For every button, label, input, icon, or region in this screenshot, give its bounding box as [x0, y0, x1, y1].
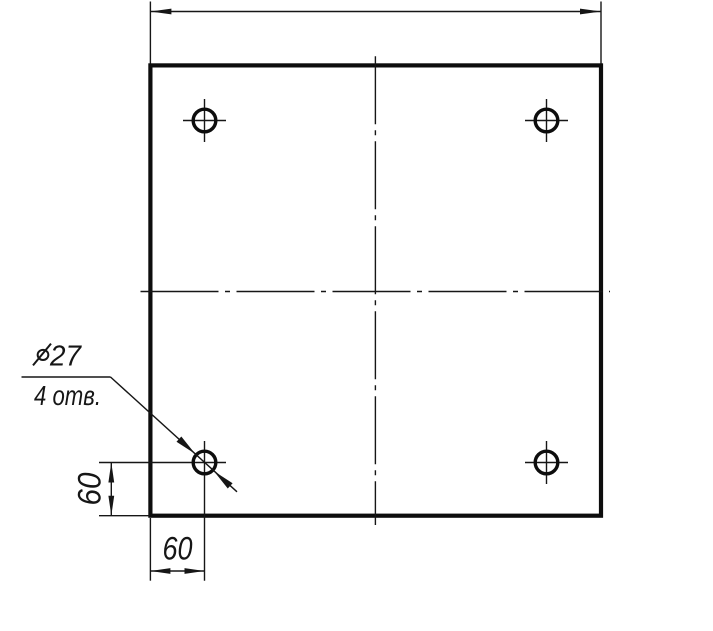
svg-text:60: 60: [163, 530, 193, 566]
svg-text:4 omв.: 4 omв.: [34, 380, 101, 411]
svg-text:60: 60: [71, 472, 107, 505]
svg-text:27: 27: [49, 341, 83, 373]
